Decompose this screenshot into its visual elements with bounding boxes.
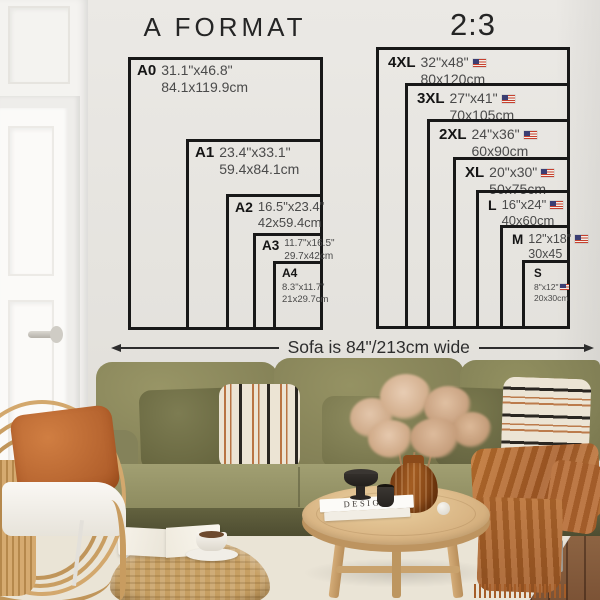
size-cm: 42x59.4cm (258, 215, 324, 231)
us-flag-icon (550, 201, 563, 209)
size-inches: 20"x30" (489, 164, 537, 180)
size-inches: 16"x24" (502, 197, 547, 212)
size-label-l: L16"x24"40x60cm (488, 197, 563, 228)
arrow-right-icon (584, 344, 594, 352)
size-code: L (488, 197, 497, 228)
us-flag-icon (473, 59, 486, 67)
size-label-2xl: 2XL24"x36"60x90cm (439, 126, 537, 160)
size-inches: 23.4"x33.1" (219, 144, 290, 160)
size-cm: 59.4x84.1cm (219, 161, 299, 178)
size-dimensions: 16"x24"40x60cm (502, 197, 564, 228)
size-label-s: S8"x12"20x30cm (534, 267, 569, 304)
size-box-a4: A48.3"x11.7"21x29.7cm (273, 261, 323, 330)
size-dimensions: 8.3"x11.7"21x29.7cm (282, 282, 328, 307)
size-dimensions: 16.5"x23.4"42x59.4cm (258, 199, 324, 230)
size-code: A4 (282, 266, 328, 282)
size-dimensions: 24"x36"60x90cm (472, 126, 537, 160)
us-flag-icon (541, 169, 554, 177)
size-cm: 84.1x119.9cm (161, 79, 248, 96)
us-flag-icon (560, 284, 569, 290)
size-cm: 20x30cm (534, 293, 569, 304)
size-code: A1 (195, 144, 214, 178)
size-label-a2: A216.5"x23.4"42x59.4cm (235, 199, 324, 230)
size-inches: 8"x12" (534, 282, 558, 292)
size-cm: 21x29.7cm (282, 294, 328, 306)
size-inches: 32"x48" (421, 54, 469, 70)
size-label-a1: A123.4"x33.1"59.4x84.1cm (195, 144, 299, 178)
size-box-s: S8"x12"20x30cm (522, 260, 570, 329)
arrow-left-icon (111, 344, 121, 352)
size-label-m: M12"x18"30x45 (512, 232, 588, 262)
size-chart-overlay: A FORMAT 2:3 A031.1"x46.8"84.1x119.9cmA1… (0, 0, 600, 600)
ratio-2-3-title: 2:3 (376, 7, 570, 43)
size-label-a3: A311.7"x16.5"29.7x42cm (262, 238, 335, 263)
size-code: M (512, 232, 523, 262)
size-inches: 11.7"x16.5" (284, 238, 334, 249)
size-dimensions: 23.4"x33.1"59.4x84.1cm (219, 144, 299, 178)
size-inches: 27"x41" (450, 90, 498, 106)
size-code: S (534, 267, 569, 282)
sofa-width-annotation: Sofa is 84"/213cm wide (111, 337, 594, 359)
us-flag-icon (502, 95, 515, 103)
size-dimensions: 8"x12"20x30cm (534, 282, 569, 304)
poster-size-guide-image: DESIGN (0, 0, 600, 600)
size-dimensions: 31.1"x46.8"84.1x119.9cm (161, 62, 248, 96)
us-flag-icon (575, 235, 588, 243)
a-format-title: A FORMAT (126, 12, 324, 43)
size-label-a0: A031.1"x46.8"84.1x119.9cm (137, 62, 248, 96)
sofa-width-label: Sofa is 84"/213cm wide (279, 337, 479, 358)
arrow-line (479, 347, 584, 349)
size-inches: 31.1"x46.8" (161, 62, 232, 78)
size-inches: 16.5"x23.4" (258, 199, 324, 214)
size-code: A3 (262, 238, 279, 263)
size-dimensions: 11.7"x16.5"29.7x42cm (284, 238, 334, 263)
arrow-line (121, 347, 279, 349)
size-inches: 24"x36" (472, 126, 520, 142)
size-code: 2XL (439, 126, 467, 160)
size-label-a4: A48.3"x11.7"21x29.7cm (282, 266, 328, 306)
us-flag-icon (524, 131, 537, 139)
size-code: A2 (235, 199, 253, 230)
size-inches: 8.3"x11.7" (282, 282, 325, 293)
size-code: A0 (137, 62, 156, 96)
size-dimensions: 12"x18"30x45 (528, 232, 588, 262)
size-inches: 12"x18" (528, 232, 571, 246)
